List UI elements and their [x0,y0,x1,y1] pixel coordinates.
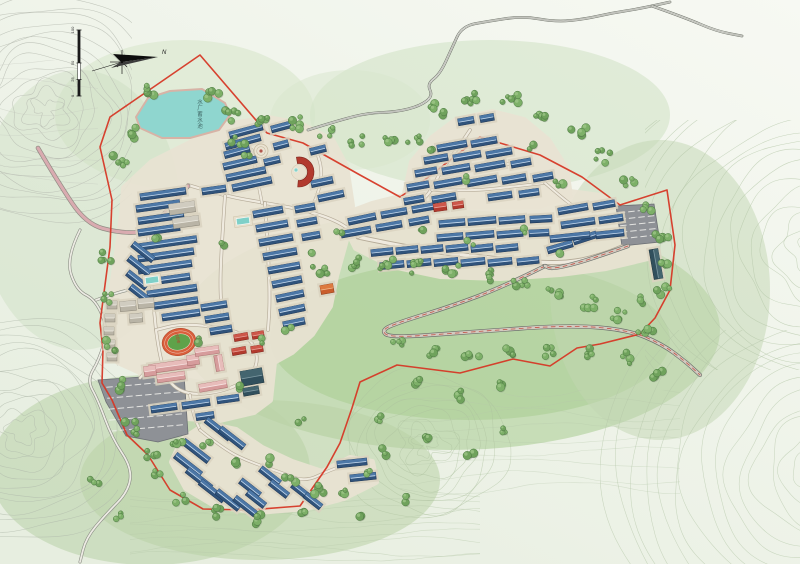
lake-label: 水厂蓄水池 [196,98,203,129]
site-plan-svg: 水厂蓄水池运动场N10050250 [0,0,800,564]
building-row [433,202,447,212]
building-row [530,215,552,223]
building-row [320,283,334,294]
scale-tick-label: 100 [70,26,75,33]
tree-cluster [241,152,253,160]
scale-tick-label: 25 [70,77,75,82]
swimming-pool [233,214,252,227]
circular-plaza [254,144,268,158]
swimming-pool [142,273,161,286]
building-row [138,297,155,308]
building-row [529,229,549,237]
compass-n-label: N [162,50,167,56]
building-row [120,300,137,311]
scale-tick-label: 50 [70,60,75,65]
master-plan-figure: 水厂蓄水池运动场N10050250 [0,0,800,564]
building-row [105,314,115,322]
building-row [129,313,143,323]
building-row [104,327,114,335]
building-row [143,365,156,377]
building-row [452,201,464,209]
